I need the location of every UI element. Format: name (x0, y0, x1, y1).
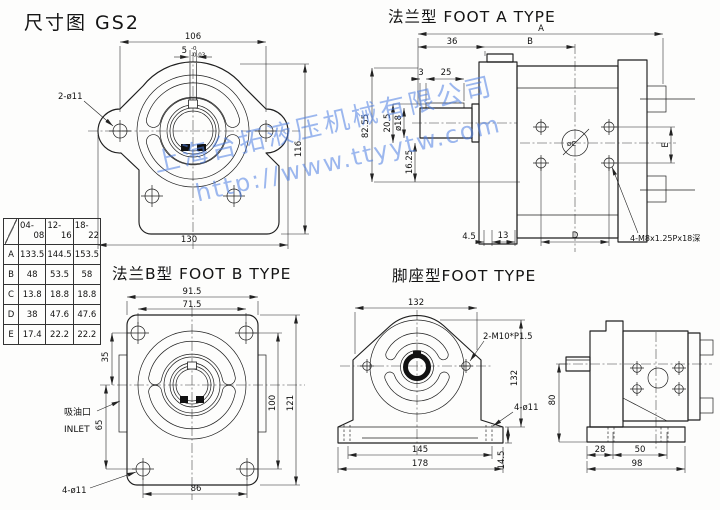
port-plug-bottom (647, 176, 666, 202)
key-block-left (180, 396, 188, 403)
key-block-left (181, 144, 190, 151)
cell: 13.8 (19, 285, 46, 305)
key-block-right (196, 396, 204, 403)
inlet-label-cn: 吸油口 (64, 406, 91, 418)
table-row: A 133.5 144.5 153.5 (4, 245, 101, 265)
side-tab-left (119, 355, 127, 432)
row-label: D (4, 305, 19, 325)
dim-130-label: 130 (181, 235, 197, 245)
table-header-row: 04- 08 12- 16 18- 22 (4, 219, 101, 245)
dim-B-label: B (527, 37, 533, 47)
dim-5-tol-upper: -0 (191, 46, 197, 52)
cell: 22.2 (46, 325, 73, 345)
keyway (188, 362, 197, 369)
bolt-hole (630, 361, 644, 375)
dim-5-label: 5 (182, 46, 187, 56)
table-row: C 13.8 18.8 18.8 (4, 285, 101, 305)
dim-16-25-label: 16.25 (405, 150, 415, 174)
table-row: B 48 53.5 58 (4, 265, 101, 285)
cell: 47.6 (46, 305, 73, 325)
mounting-hole (127, 322, 149, 344)
bolt-hole (533, 119, 549, 135)
rear-cover (618, 60, 647, 242)
dim-28-label: 28 (595, 445, 606, 455)
cell: 17.4 (19, 325, 46, 345)
inlet-label-en: INLET (64, 425, 90, 435)
body-edge-lines (517, 88, 618, 215)
pump-body (517, 66, 618, 238)
col-header-line2: 08 (20, 232, 44, 242)
mounting-hole (223, 185, 245, 207)
dim-D-label: D (572, 231, 579, 241)
cell: 47.6 (73, 305, 100, 325)
cell: 18.8 (46, 285, 73, 305)
dim-65-label: 65 (95, 420, 105, 431)
foot-slot-lines (344, 425, 492, 443)
cell: 144.5 (46, 245, 73, 265)
gusset-edge (623, 398, 667, 421)
foot-slot-lines (608, 427, 668, 442)
dim-25-label: 25 (441, 68, 452, 78)
cell: 58 (73, 265, 100, 285)
holes-callout: 4-ø11 (62, 486, 87, 496)
dim-82-55-label: 82.55 (361, 114, 371, 138)
front-flange (590, 321, 623, 427)
dim-121-label: 121 (286, 395, 296, 411)
mounting-hole (459, 359, 473, 373)
col-header: 04- 08 (19, 219, 46, 245)
col-header: 18- 22 (73, 219, 100, 245)
dim-106-label: 106 (185, 32, 201, 42)
port-plug-top (700, 340, 713, 355)
keyway (189, 100, 198, 108)
front-holes-callout: 2-ø11 (58, 92, 83, 102)
col-header-line2: 22 (75, 232, 99, 242)
page-title: 尺寸图 GS2 (24, 8, 140, 35)
bolt-hole (672, 382, 686, 396)
foot-a-view-title: 法兰型 FOOT A TYPE (388, 5, 556, 27)
foot-base-lines (338, 427, 503, 438)
center-dia-label: øC (567, 140, 576, 148)
dim-132-right-label: 132 (510, 370, 520, 386)
row-label: B (4, 265, 19, 285)
bolt-hole (630, 382, 644, 396)
keyway (413, 351, 421, 357)
foot-b-view-title: 法兰B型 FOOT B TYPE (112, 262, 291, 284)
dim-13-label: 13 (498, 231, 509, 241)
side-tab-right (258, 355, 266, 432)
cell: 38 (19, 305, 46, 325)
drawing-linework: 106 5 -0 -0.03 116 130 2-ø11 (0, 0, 720, 510)
mounting-hole (132, 458, 154, 480)
dim-132-top-label: 132 (408, 298, 424, 308)
center-port-circle (648, 368, 668, 388)
cell: 133.5 (19, 245, 46, 265)
dim-4-5-label: 4.5 (462, 232, 476, 242)
square-flange (127, 315, 258, 485)
dim-71-5-label: 71.5 (183, 300, 202, 310)
col-header: 12- 16 (46, 219, 73, 245)
dim-91-5-label: 91.5 (183, 287, 202, 297)
mounting-hole (255, 120, 277, 142)
flange-tab (487, 54, 513, 62)
col-header-line2: 16 (47, 232, 71, 242)
dim-80-label: 80 (548, 395, 558, 406)
cell: 48 (19, 265, 46, 285)
dim-100-label: 100 (268, 395, 278, 411)
holes-callout: 4-ø11 (514, 403, 539, 413)
rear-cover (688, 333, 700, 420)
dim-116-label: 116 (294, 141, 304, 157)
foot-a-view: øC A 36 B 3 25 82.55 20.5 (361, 24, 700, 252)
dim-E-label: E (661, 142, 671, 147)
row-label: E (4, 325, 19, 345)
dim-178-label: 178 (412, 459, 428, 469)
thread-callout: 4-M8x1.25Px18深 (630, 234, 700, 243)
row-label: C (4, 285, 19, 305)
dim-14-5-label: 14.5 (497, 451, 507, 470)
front-flange (479, 62, 517, 244)
mounting-hole (109, 120, 131, 142)
dim-86-label: 86 (191, 484, 202, 494)
mounting-hole (141, 185, 163, 207)
dim-50-label: 50 (635, 445, 646, 455)
dim-5-tol-lower: -0.03 (191, 53, 206, 59)
row-label: A (4, 245, 19, 265)
cell: 18.8 (73, 285, 100, 305)
table-row: D 38 47.6 47.6 (4, 305, 101, 325)
dim-98-label: 98 (632, 459, 643, 469)
shaft-dia-label: ø18 (394, 115, 404, 131)
pump-body (623, 331, 688, 421)
key-block-right (197, 144, 206, 151)
spec-table: 04- 08 12- 16 18- 22 A 133.5 144.5 153.5… (3, 218, 101, 345)
foot-type-view-title: 脚座型FOOT TYPE (392, 264, 536, 286)
drawing-sheet: 106 5 -0 -0.03 116 130 2-ø11 (0, 0, 720, 510)
dim-35-label: 35 (101, 352, 111, 363)
shaft-key (426, 103, 464, 108)
mounting-hole (360, 359, 374, 373)
foot-base (587, 427, 685, 442)
table-row: E 17.4 22.2 22.2 (4, 325, 101, 345)
cell: 22.2 (73, 325, 100, 345)
side-view: 80 28 50 98 (548, 321, 713, 473)
dim-20-5-label: 20.5 (383, 114, 393, 133)
dim-145-label: 145 (412, 445, 428, 455)
dim-36-label: 36 (447, 37, 458, 47)
bolt-hole (672, 361, 686, 375)
cell: 53.5 (46, 265, 73, 285)
bolt-hole (601, 119, 617, 135)
foot-type-view: 132 2-M10*P1.5 132 4-ø11 14.5 145 178 (338, 298, 539, 473)
dim-3-label: 3 (418, 68, 423, 78)
diagonal-cell (5, 219, 17, 244)
cell: 153.5 (73, 245, 100, 265)
port-plug-bottom (700, 398, 713, 413)
thread-callout: 2-M10*P1.5 (483, 332, 533, 342)
